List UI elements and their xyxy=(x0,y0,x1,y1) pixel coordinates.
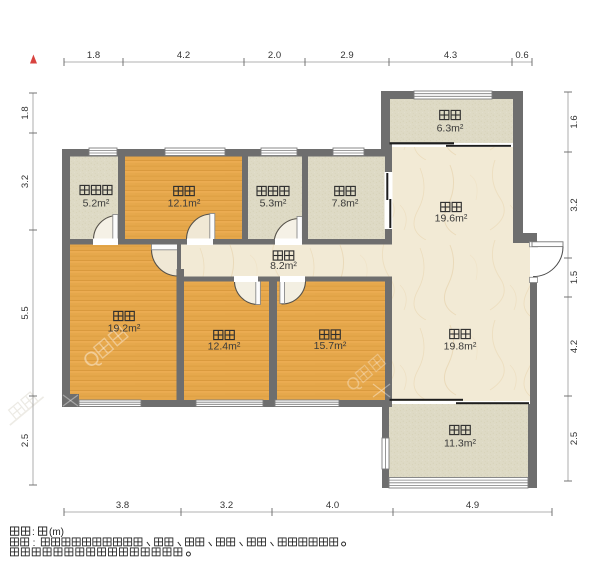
svg-text:12.1m²: 12.1m² xyxy=(168,198,201,210)
svg-text:4.9: 4.9 xyxy=(466,500,479,511)
svg-text:(m): (m) xyxy=(49,527,64,538)
svg-text:1.5: 1.5 xyxy=(569,271,580,284)
svg-text:3.2: 3.2 xyxy=(220,500,233,511)
svg-text:19.2m²: 19.2m² xyxy=(108,323,141,335)
svg-text:11.3m²: 11.3m² xyxy=(444,438,476,450)
svg-text:7.8m²: 7.8m² xyxy=(332,198,359,210)
svg-text:1.8: 1.8 xyxy=(87,50,100,61)
svg-text:12.4m²: 12.4m² xyxy=(208,341,241,353)
svg-text:19.8m²: 19.8m² xyxy=(444,341,477,353)
svg-text:1.8: 1.8 xyxy=(20,106,31,119)
svg-text::: : xyxy=(32,527,35,538)
svg-text:19.6m²: 19.6m² xyxy=(435,213,468,225)
svg-text:2.0: 2.0 xyxy=(268,50,281,61)
svg-text:4.2: 4.2 xyxy=(569,340,580,353)
svg-text:6.3m²: 6.3m² xyxy=(437,123,464,135)
svg-text:8.2m²: 8.2m² xyxy=(270,260,297,272)
svg-text:2.9: 2.9 xyxy=(340,50,353,61)
svg-text:3.2: 3.2 xyxy=(20,175,31,188)
svg-text:2.5: 2.5 xyxy=(20,434,31,447)
svg-text:3.2: 3.2 xyxy=(569,198,580,211)
svg-text:4.3: 4.3 xyxy=(444,50,457,61)
svg-text::: : xyxy=(33,538,36,549)
svg-text:5.2m²: 5.2m² xyxy=(83,198,110,210)
svg-text:4.2: 4.2 xyxy=(177,50,190,61)
svg-text:1.6: 1.6 xyxy=(569,115,580,128)
svg-text:2.5: 2.5 xyxy=(569,432,580,445)
svg-text:5.3m²: 5.3m² xyxy=(260,198,287,210)
svg-text:5.5: 5.5 xyxy=(20,306,31,319)
svg-text:4.0: 4.0 xyxy=(326,500,339,511)
svg-text:3.8: 3.8 xyxy=(116,500,129,511)
svg-text:0.6: 0.6 xyxy=(515,50,528,61)
svg-text:15.7m²: 15.7m² xyxy=(314,340,347,352)
